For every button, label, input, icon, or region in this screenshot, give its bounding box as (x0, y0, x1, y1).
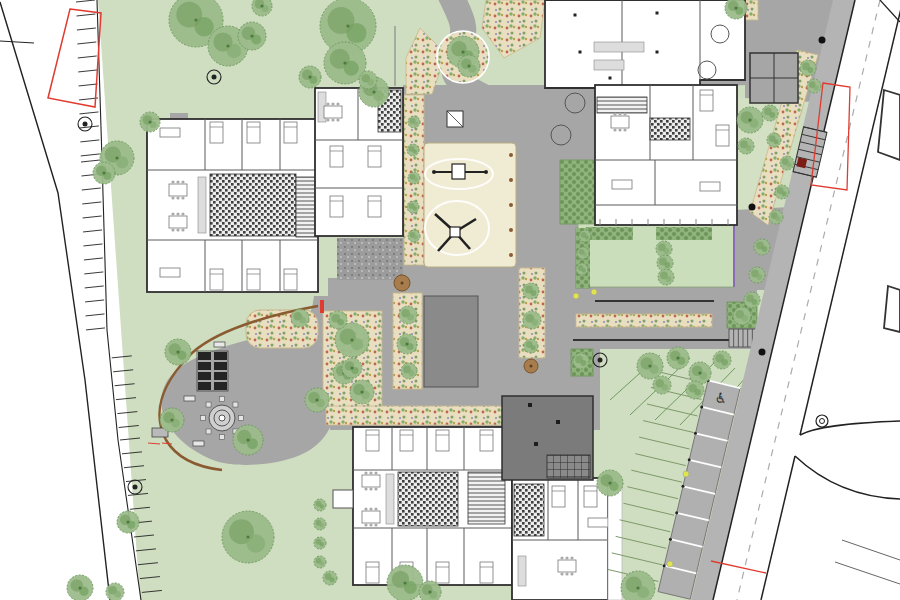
tree (299, 66, 321, 88)
bench (193, 441, 204, 446)
site-plan-drawing: ♿ (0, 0, 900, 600)
bed (247, 269, 260, 290)
tree (744, 292, 760, 308)
bed (552, 486, 565, 507)
tree (458, 55, 480, 77)
bed (247, 122, 260, 143)
tree (775, 185, 789, 199)
pergola-post (509, 228, 513, 232)
side-walk-strip (608, 482, 622, 600)
bathroom-core (514, 484, 544, 536)
pergola-post (509, 203, 513, 207)
sofa (160, 268, 180, 277)
bathroom-core (650, 118, 690, 140)
tree (408, 172, 420, 184)
tree (523, 283, 539, 299)
tree (329, 311, 347, 329)
tree (387, 565, 423, 600)
bed (366, 562, 379, 583)
pergola-post (509, 153, 513, 157)
bed (366, 430, 379, 451)
tree (117, 511, 139, 533)
tree (754, 239, 770, 255)
tree (397, 334, 417, 354)
kitchen-counter (594, 42, 644, 52)
site-plan-canvas: ♿ (0, 0, 900, 600)
building-apartments-east (595, 85, 737, 225)
bollard (759, 349, 766, 356)
tree (767, 133, 781, 147)
stair-core (468, 472, 505, 524)
bed (436, 562, 449, 583)
tree (342, 358, 362, 378)
playground (424, 143, 516, 267)
paved-terrace-dark (424, 296, 478, 387)
bed (480, 562, 493, 583)
tree (762, 105, 778, 121)
bed (284, 122, 297, 143)
tree (738, 138, 754, 154)
bench (214, 342, 225, 347)
tree (350, 380, 374, 404)
tree (314, 537, 326, 549)
kitchen-counter (198, 177, 206, 233)
tree (733, 307, 751, 325)
tree (233, 425, 263, 455)
tree (419, 581, 441, 600)
bathroom-core (398, 472, 458, 526)
tree (67, 575, 93, 600)
site-plan-page: ♿ (0, 0, 900, 600)
kitchen-counter (518, 556, 526, 586)
flat-roof-block (502, 396, 593, 480)
tree (314, 518, 326, 530)
tree (305, 388, 329, 412)
bollard (749, 204, 756, 211)
canopy-skylight (447, 111, 463, 127)
tree (524, 339, 538, 353)
planting-bed (576, 314, 712, 327)
building-care-home-north (147, 119, 318, 292)
tree (399, 306, 417, 324)
tree (686, 381, 704, 399)
bed (368, 196, 381, 217)
tree (658, 269, 674, 285)
light-marker (591, 289, 597, 295)
bed (330, 146, 343, 167)
tree-trunk (394, 275, 410, 291)
tree (713, 351, 731, 369)
sofa (700, 182, 720, 191)
tree (807, 79, 821, 93)
building-house-north-link (315, 88, 403, 236)
pergola-post (509, 253, 513, 257)
pergola-post (509, 178, 513, 182)
tree (291, 309, 309, 327)
sofa (588, 518, 608, 527)
roof-grille (547, 455, 590, 478)
tree (314, 499, 326, 511)
tree (573, 353, 589, 369)
tree (93, 162, 115, 184)
building-care-home-south (333, 427, 512, 585)
tree (408, 116, 420, 128)
tree (160, 408, 184, 432)
hedge (560, 160, 595, 224)
tree (222, 511, 274, 563)
bed (400, 430, 413, 451)
sofa (160, 128, 180, 137)
bollard (819, 37, 826, 44)
tree (800, 60, 816, 76)
light-marker (573, 293, 579, 299)
tree (359, 71, 377, 89)
tree (737, 107, 763, 133)
bike-shelter (750, 53, 798, 103)
bed (210, 122, 223, 143)
tree (106, 583, 124, 600)
tree (653, 376, 671, 394)
manhole (816, 415, 828, 427)
bed (584, 486, 597, 507)
tree (323, 571, 337, 585)
bench (184, 396, 195, 401)
tree (314, 556, 326, 568)
tree (597, 470, 623, 496)
bed (716, 125, 729, 146)
bathroom-core (210, 174, 296, 236)
tree (577, 247, 589, 259)
tree (576, 263, 588, 275)
tree (621, 571, 655, 600)
tree (523, 311, 541, 329)
entrance-porch (333, 490, 353, 508)
tree-trunk (524, 359, 538, 373)
bed (480, 430, 493, 451)
stair-core (597, 97, 647, 113)
tree (408, 230, 420, 242)
tree (667, 347, 689, 369)
building-annex-south (512, 478, 608, 600)
tree (749, 267, 765, 283)
bed (436, 430, 449, 451)
kitchen-counter (594, 60, 624, 70)
bed (284, 269, 297, 290)
tree (140, 112, 160, 132)
tree (637, 353, 663, 379)
light-marker (667, 561, 673, 567)
tree (165, 339, 191, 365)
tree (407, 144, 419, 156)
tree (238, 22, 266, 50)
tree (689, 362, 711, 384)
tree (407, 201, 419, 213)
light-marker (683, 471, 689, 477)
kitchen-counter (386, 474, 394, 524)
tree (780, 156, 794, 170)
bed (368, 146, 381, 167)
bed (330, 196, 343, 217)
bed (700, 90, 713, 111)
bed (210, 269, 223, 290)
sofa (612, 180, 632, 189)
tree (401, 363, 417, 379)
tree (725, 0, 747, 19)
tree (769, 210, 783, 224)
tree (579, 230, 591, 242)
